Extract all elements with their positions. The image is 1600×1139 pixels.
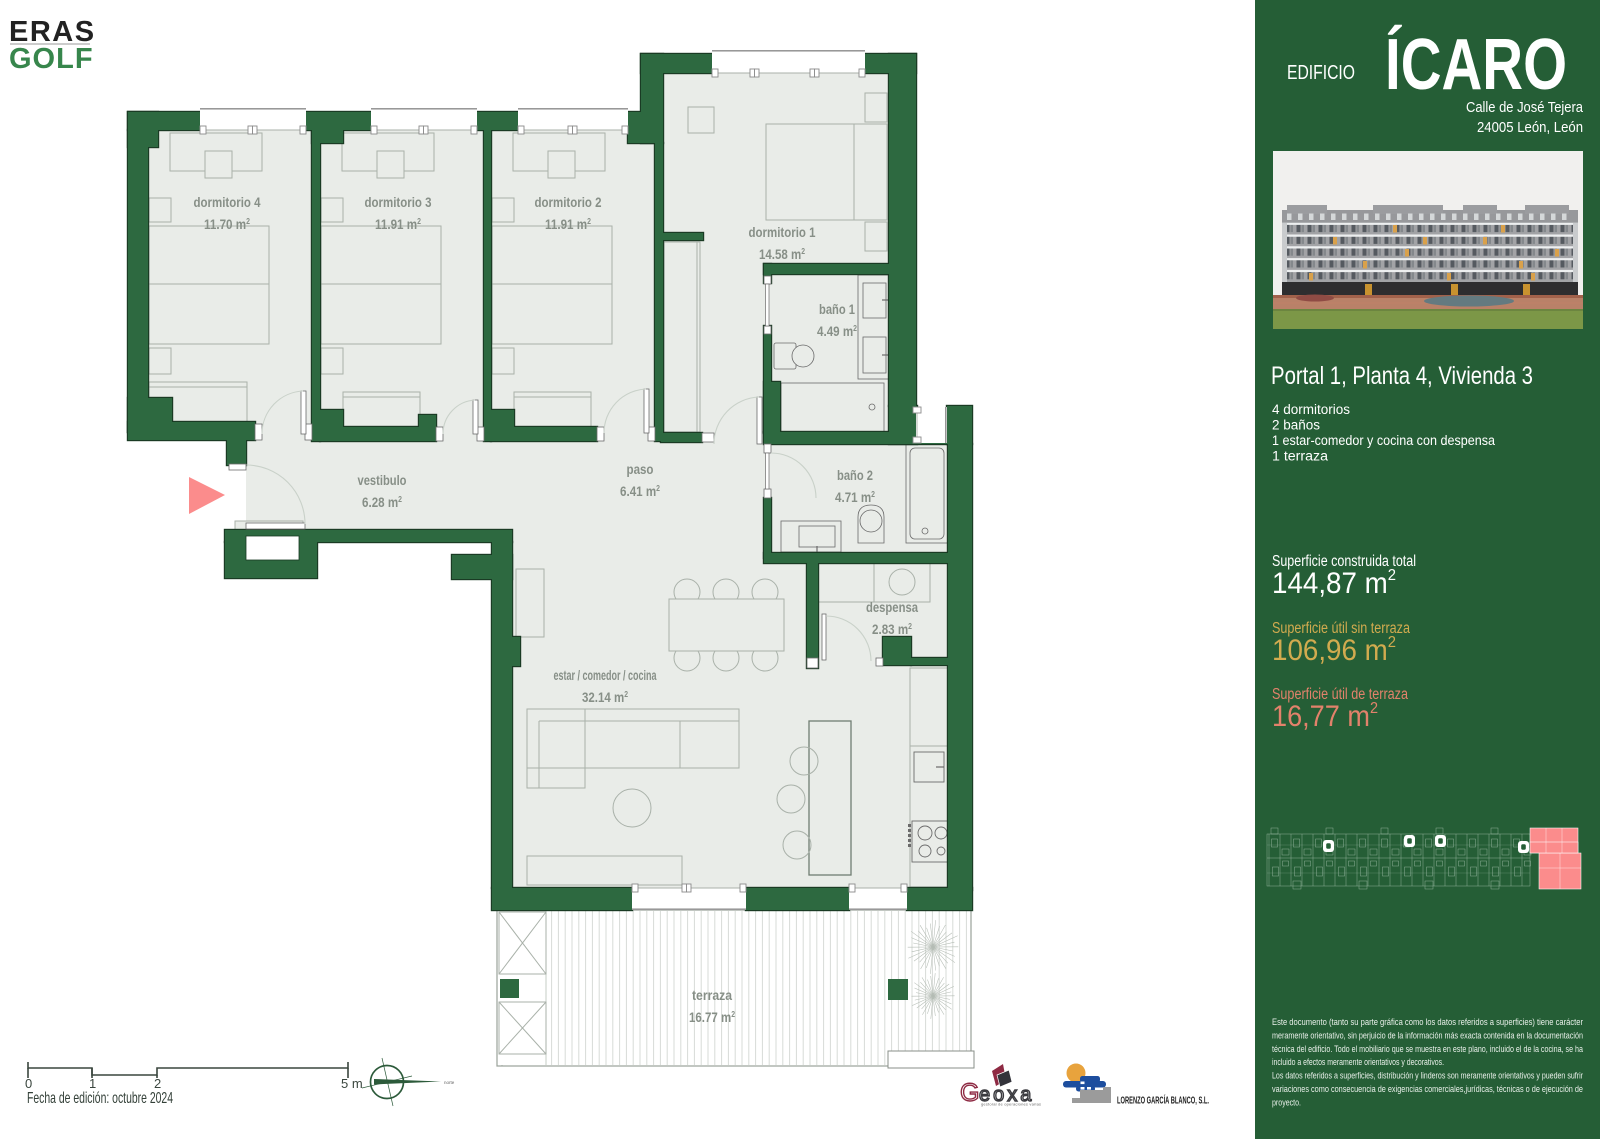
svg-text:Portal 1, Planta 4, Vivienda 3: Portal 1, Planta 4, Vivienda 3 [1271, 362, 1533, 390]
svg-text:estar / comedor / cocina: estar / comedor / cocina [554, 668, 657, 683]
svg-text:Fecha de edición: octubre 2024: Fecha de edición: octubre 2024 [27, 1090, 173, 1107]
svg-text:1 terraza: 1 terraza [1272, 449, 1329, 464]
svg-text:Los datos referidos a superfic: Los datos referidos a superficies, distr… [1272, 1071, 1584, 1082]
svg-text:baño 2: baño 2 [837, 468, 873, 483]
svg-text:LORENZO GARCÍA BLANCO, S.L.: LORENZO GARCÍA BLANCO, S.L. [1117, 1094, 1209, 1107]
svg-text:6.28 m2: 6.28 m2 [362, 495, 402, 510]
svg-text:despensa: despensa [866, 600, 918, 615]
svg-text:11.70 m2: 11.70 m2 [204, 217, 250, 232]
svg-text:meramente orientativo, sin per: meramente orientativo, sin perjuicio de … [1272, 1030, 1583, 1041]
svg-text:Este documento (tanto su parte: Este documento (tanto su parte gráfica c… [1272, 1017, 1584, 1028]
svg-text:vestibulo: vestibulo [358, 473, 407, 488]
svg-text:EDIFICIO: EDIFICIO [1287, 62, 1355, 84]
svg-text:2 baños: 2 baños [1272, 418, 1320, 433]
svg-text:6.41 m2: 6.41 m2 [620, 484, 660, 499]
svg-text:1: 1 [89, 1076, 96, 1091]
svg-text:14.58 m2: 14.58 m2 [759, 247, 805, 262]
svg-text:paso: paso [627, 462, 654, 477]
svg-text:16,77 m2: 16,77 m2 [1272, 700, 1378, 733]
svg-text:ÍCARO: ÍCARO [1385, 25, 1567, 105]
svg-text:proyecto.: proyecto. [1272, 1097, 1301, 1108]
svg-text:11.91 m2: 11.91 m2 [375, 217, 421, 232]
svg-text:4 dormitorios: 4 dormitorios [1272, 402, 1350, 417]
svg-text:144,87 m2: 144,87 m2 [1272, 567, 1396, 600]
svg-text:Calle de José Tejera: Calle de José Tejera [1466, 99, 1584, 116]
svg-text:24005 León, León: 24005 León, León [1477, 119, 1583, 136]
svg-text:GOLF: GOLF [9, 43, 94, 75]
svg-text:1 estar-comedor y cocina con d: 1 estar-comedor y cocina con despensa [1272, 433, 1495, 448]
svg-text:dormitorio 1: dormitorio 1 [749, 225, 816, 240]
svg-text:baño 1: baño 1 [819, 302, 855, 317]
svg-text:dormitorio 2: dormitorio 2 [535, 195, 602, 210]
svg-text:16.77 m2: 16.77 m2 [689, 1010, 735, 1025]
svg-text:dormitorio 4: dormitorio 4 [194, 195, 261, 210]
svg-text:4.49 m2: 4.49 m2 [817, 324, 857, 339]
svg-text:2: 2 [154, 1076, 161, 1091]
svg-text:32.14 m2: 32.14 m2 [582, 690, 628, 705]
svg-text:gestoral de operaciones varias: gestoral de operaciones varias [981, 1102, 1041, 1107]
svg-text:2.83 m2: 2.83 m2 [872, 622, 912, 637]
svg-text:técnica del edificio. Todo el: técnica del edificio. Todo el mobiliario… [1272, 1044, 1583, 1055]
svg-text:0: 0 [25, 1076, 32, 1091]
svg-text:variaciones como consecuencia: variaciones como consecuencia de exigenc… [1272, 1084, 1583, 1095]
svg-text:G: G [960, 1079, 979, 1107]
svg-text:5 m: 5 m [341, 1076, 363, 1091]
svg-text:incluido a efectos meramente o: incluido a efectos meramente orientativo… [1272, 1057, 1444, 1068]
svg-text:terraza: terraza [692, 988, 732, 1003]
svg-text:norte: norte [444, 1080, 455, 1085]
svg-text:106,96 m2: 106,96 m2 [1272, 634, 1396, 667]
svg-text:dormitorio 3: dormitorio 3 [365, 195, 432, 210]
svg-text:11.91 m2: 11.91 m2 [545, 217, 591, 232]
svg-text:4.71 m2: 4.71 m2 [835, 490, 875, 505]
